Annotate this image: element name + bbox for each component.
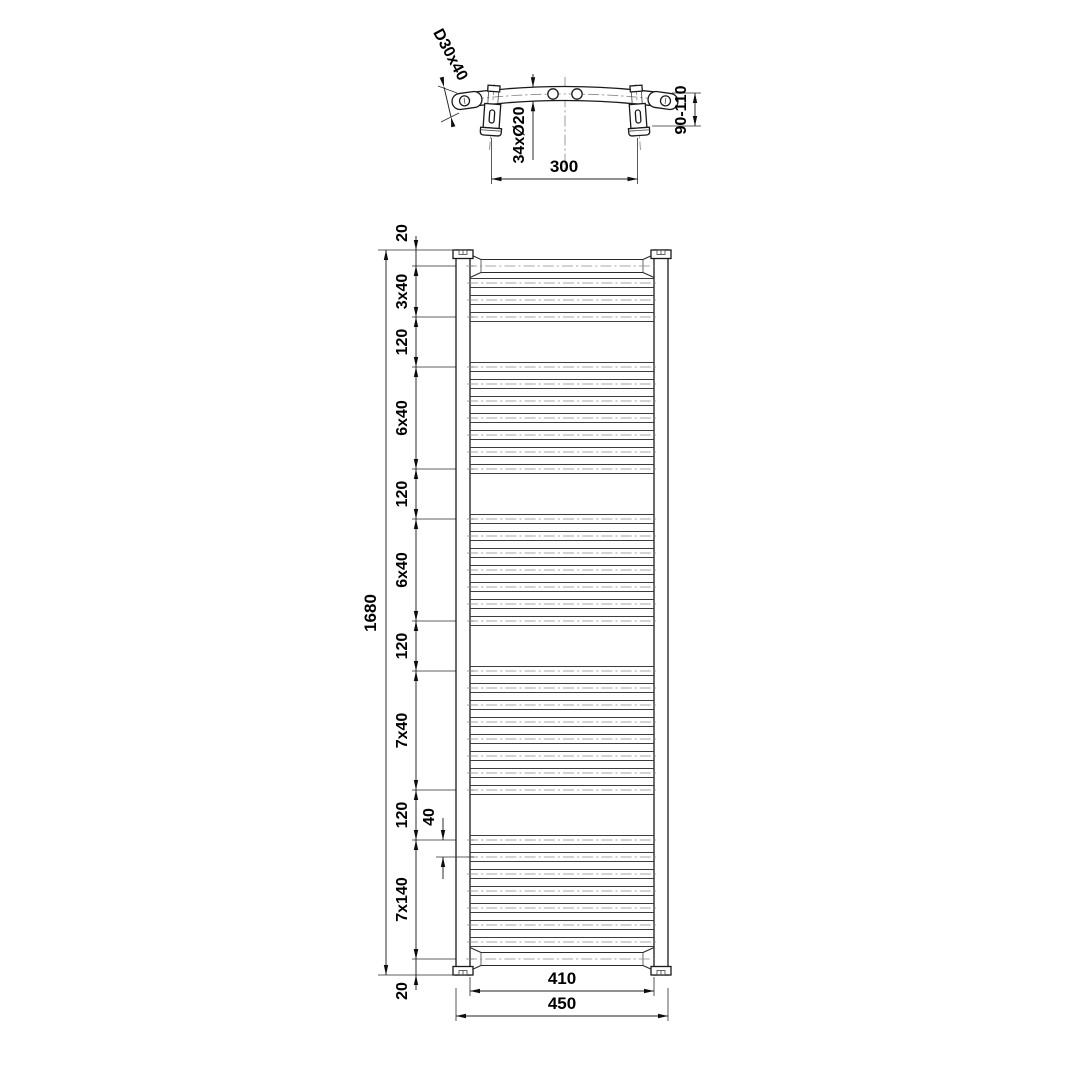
overall-height-dimension: 1680 [361,250,388,975]
overall-width-dimension: 450 [456,988,668,1021]
rungs [467,279,657,947]
rung [467,938,657,947]
chain-dimension-label: 6x40 [394,552,411,588]
wall-distance-dimension-label: 90-110 [673,85,690,134]
inner-width-dimension-label: 410 [548,969,576,988]
rung-gap-detail-label: 40 [421,808,438,826]
rung [467,431,657,440]
rung [467,718,657,727]
rung [467,684,657,693]
rung [467,313,657,322]
rung [467,583,657,592]
bottom-left-fitting [453,967,473,976]
rung-count-dimension-label: 34xØ20 [511,106,528,163]
bottom-right-fitting [651,967,671,976]
rung [467,380,657,389]
technical-drawing-page: D30x40 34xØ20 90-110 300 [0,0,1080,1080]
chain-dimension-label: 3x40 [394,274,411,310]
top-view: D30x40 34xØ20 90-110 300 [429,26,701,184]
rung [467,887,657,896]
rung [467,600,657,609]
bottom-rail [466,948,658,971]
rung [467,532,657,541]
rung [467,870,657,879]
chain-dimension-label: 6x40 [394,400,411,436]
chain-dimension-label: 7x140 [394,877,411,922]
rung [467,769,657,778]
profile-dimension: D30x40 [429,26,470,127]
rung [467,667,657,676]
rung [467,786,657,795]
chain-dimension-label: 20 [394,982,411,1000]
chain-dimension-label: 120 [394,633,411,660]
chain-dimension-label: 7x40 [394,713,411,749]
chain-dimension-label: 20 [394,224,411,242]
left-collector-tube [456,250,470,975]
right-collector-tube [654,250,668,975]
rung [467,853,657,862]
profile-dimension-label: D30x40 [429,26,470,84]
rung [467,752,657,761]
radiator-dimension-drawing: D30x40 34xØ20 90-110 300 [0,0,1080,1080]
rung [467,921,657,930]
rung [467,836,657,845]
rung [467,617,657,626]
rung [467,279,657,288]
rung [467,414,657,423]
rung [467,566,657,575]
front-view: 203x401206x401206x401207x401207x14020 [361,224,671,1021]
rung [467,735,657,744]
rung [467,296,657,305]
top-right-fitting [651,250,671,259]
rung [467,363,657,372]
rung [467,515,657,524]
top-rail [466,255,658,278]
rung [467,465,657,474]
overall-width-dimension-label: 450 [548,994,576,1013]
inner-width-dimension: 410 [470,969,654,996]
overall-height-dimension-label: 1680 [361,594,380,632]
rung [467,904,657,913]
rung [467,397,657,406]
top-left-fitting [453,250,473,259]
rung [467,701,657,710]
bracket-spacing-dimension-label: 300 [550,157,578,176]
left-end-cap [451,90,483,110]
rung [467,448,657,457]
chain-dimension-label: 120 [394,329,411,356]
chain-dimension-label: 120 [394,481,411,508]
chain-dimension-label: 120 [394,802,411,829]
rung [467,549,657,558]
